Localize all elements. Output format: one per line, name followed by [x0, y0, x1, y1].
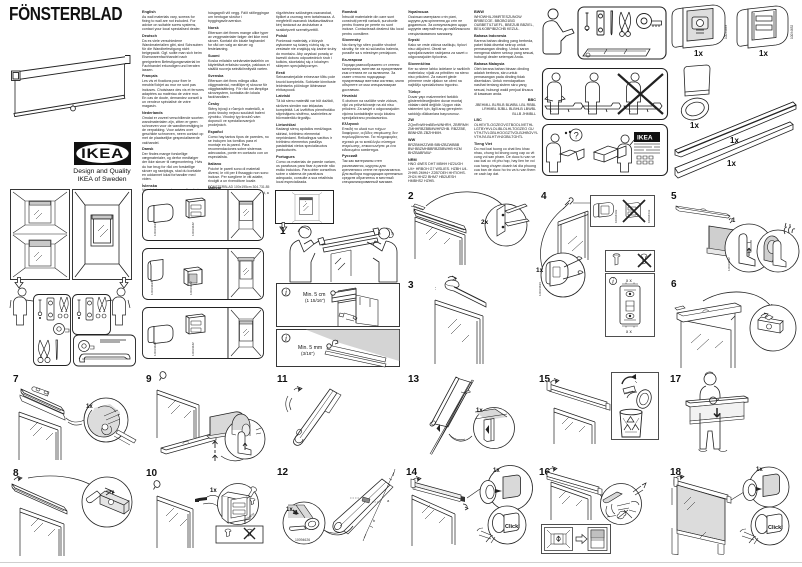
svg-text:a: a [387, 498, 390, 503]
svg-text:®: ® [127, 145, 130, 150]
svg-text:10094693: 10094693 [153, 342, 157, 356]
svg-text:b: b [373, 518, 376, 523]
svg-text:i: i [285, 334, 287, 343]
svg-text:i: i [285, 288, 287, 297]
svg-text:1x: 1x [759, 49, 768, 58]
svg-text:2x: 2x [481, 219, 489, 226]
svg-text:1x: 1x [286, 507, 293, 513]
svg-text:10094632: 10094632 [727, 257, 731, 271]
svg-text:10094632: 10094632 [790, 25, 794, 39]
svg-text:10094693: 10094693 [153, 222, 157, 236]
svg-text::: : [435, 286, 436, 292]
svg-text:10094693: 10094693 [538, 282, 542, 296]
svg-text:(1 15/16"): (1 15/16") [305, 298, 325, 303]
svg-text:1x: 1x [493, 468, 500, 474]
svg-text:10094693: 10094693 [150, 281, 154, 295]
svg-text:10094632: 10094632 [647, 209, 651, 223]
svg-text:x x: x x [626, 329, 633, 334]
svg-text:(3/16"): (3/16") [301, 351, 315, 356]
svg-text:1x: 1x [210, 488, 217, 494]
svg-text:1x: 1x [727, 159, 736, 168]
svg-text:1x: 1x [476, 408, 483, 414]
svg-text:Click!: Click! [768, 525, 783, 531]
svg-text:?: ? [574, 130, 579, 140]
svg-text:Click!: Click! [505, 524, 520, 530]
svg-text:10094632: 10094632 [191, 342, 195, 356]
svg-text:1x: 1x [536, 267, 544, 274]
svg-text:1: 1 [732, 218, 736, 224]
svg-text:10094693: 10094693 [614, 209, 618, 223]
svg-text:10094626: 10094626 [295, 538, 310, 542]
svg-text:10094693: 10094693 [724, 25, 728, 39]
svg-text:IKEA: IKEA [637, 135, 653, 142]
svg-text:10094632: 10094632 [189, 281, 193, 295]
svg-text:IKEA: IKEA [81, 146, 124, 162]
svg-text:1x: 1x [694, 49, 703, 58]
svg-text:10094632: 10094632 [191, 222, 195, 236]
svg-text:i: i [612, 278, 614, 286]
svg-text:1x: 1x [756, 467, 763, 473]
svg-text:x x: x x [626, 278, 633, 283]
svg-text:1x: 1x [86, 404, 93, 410]
